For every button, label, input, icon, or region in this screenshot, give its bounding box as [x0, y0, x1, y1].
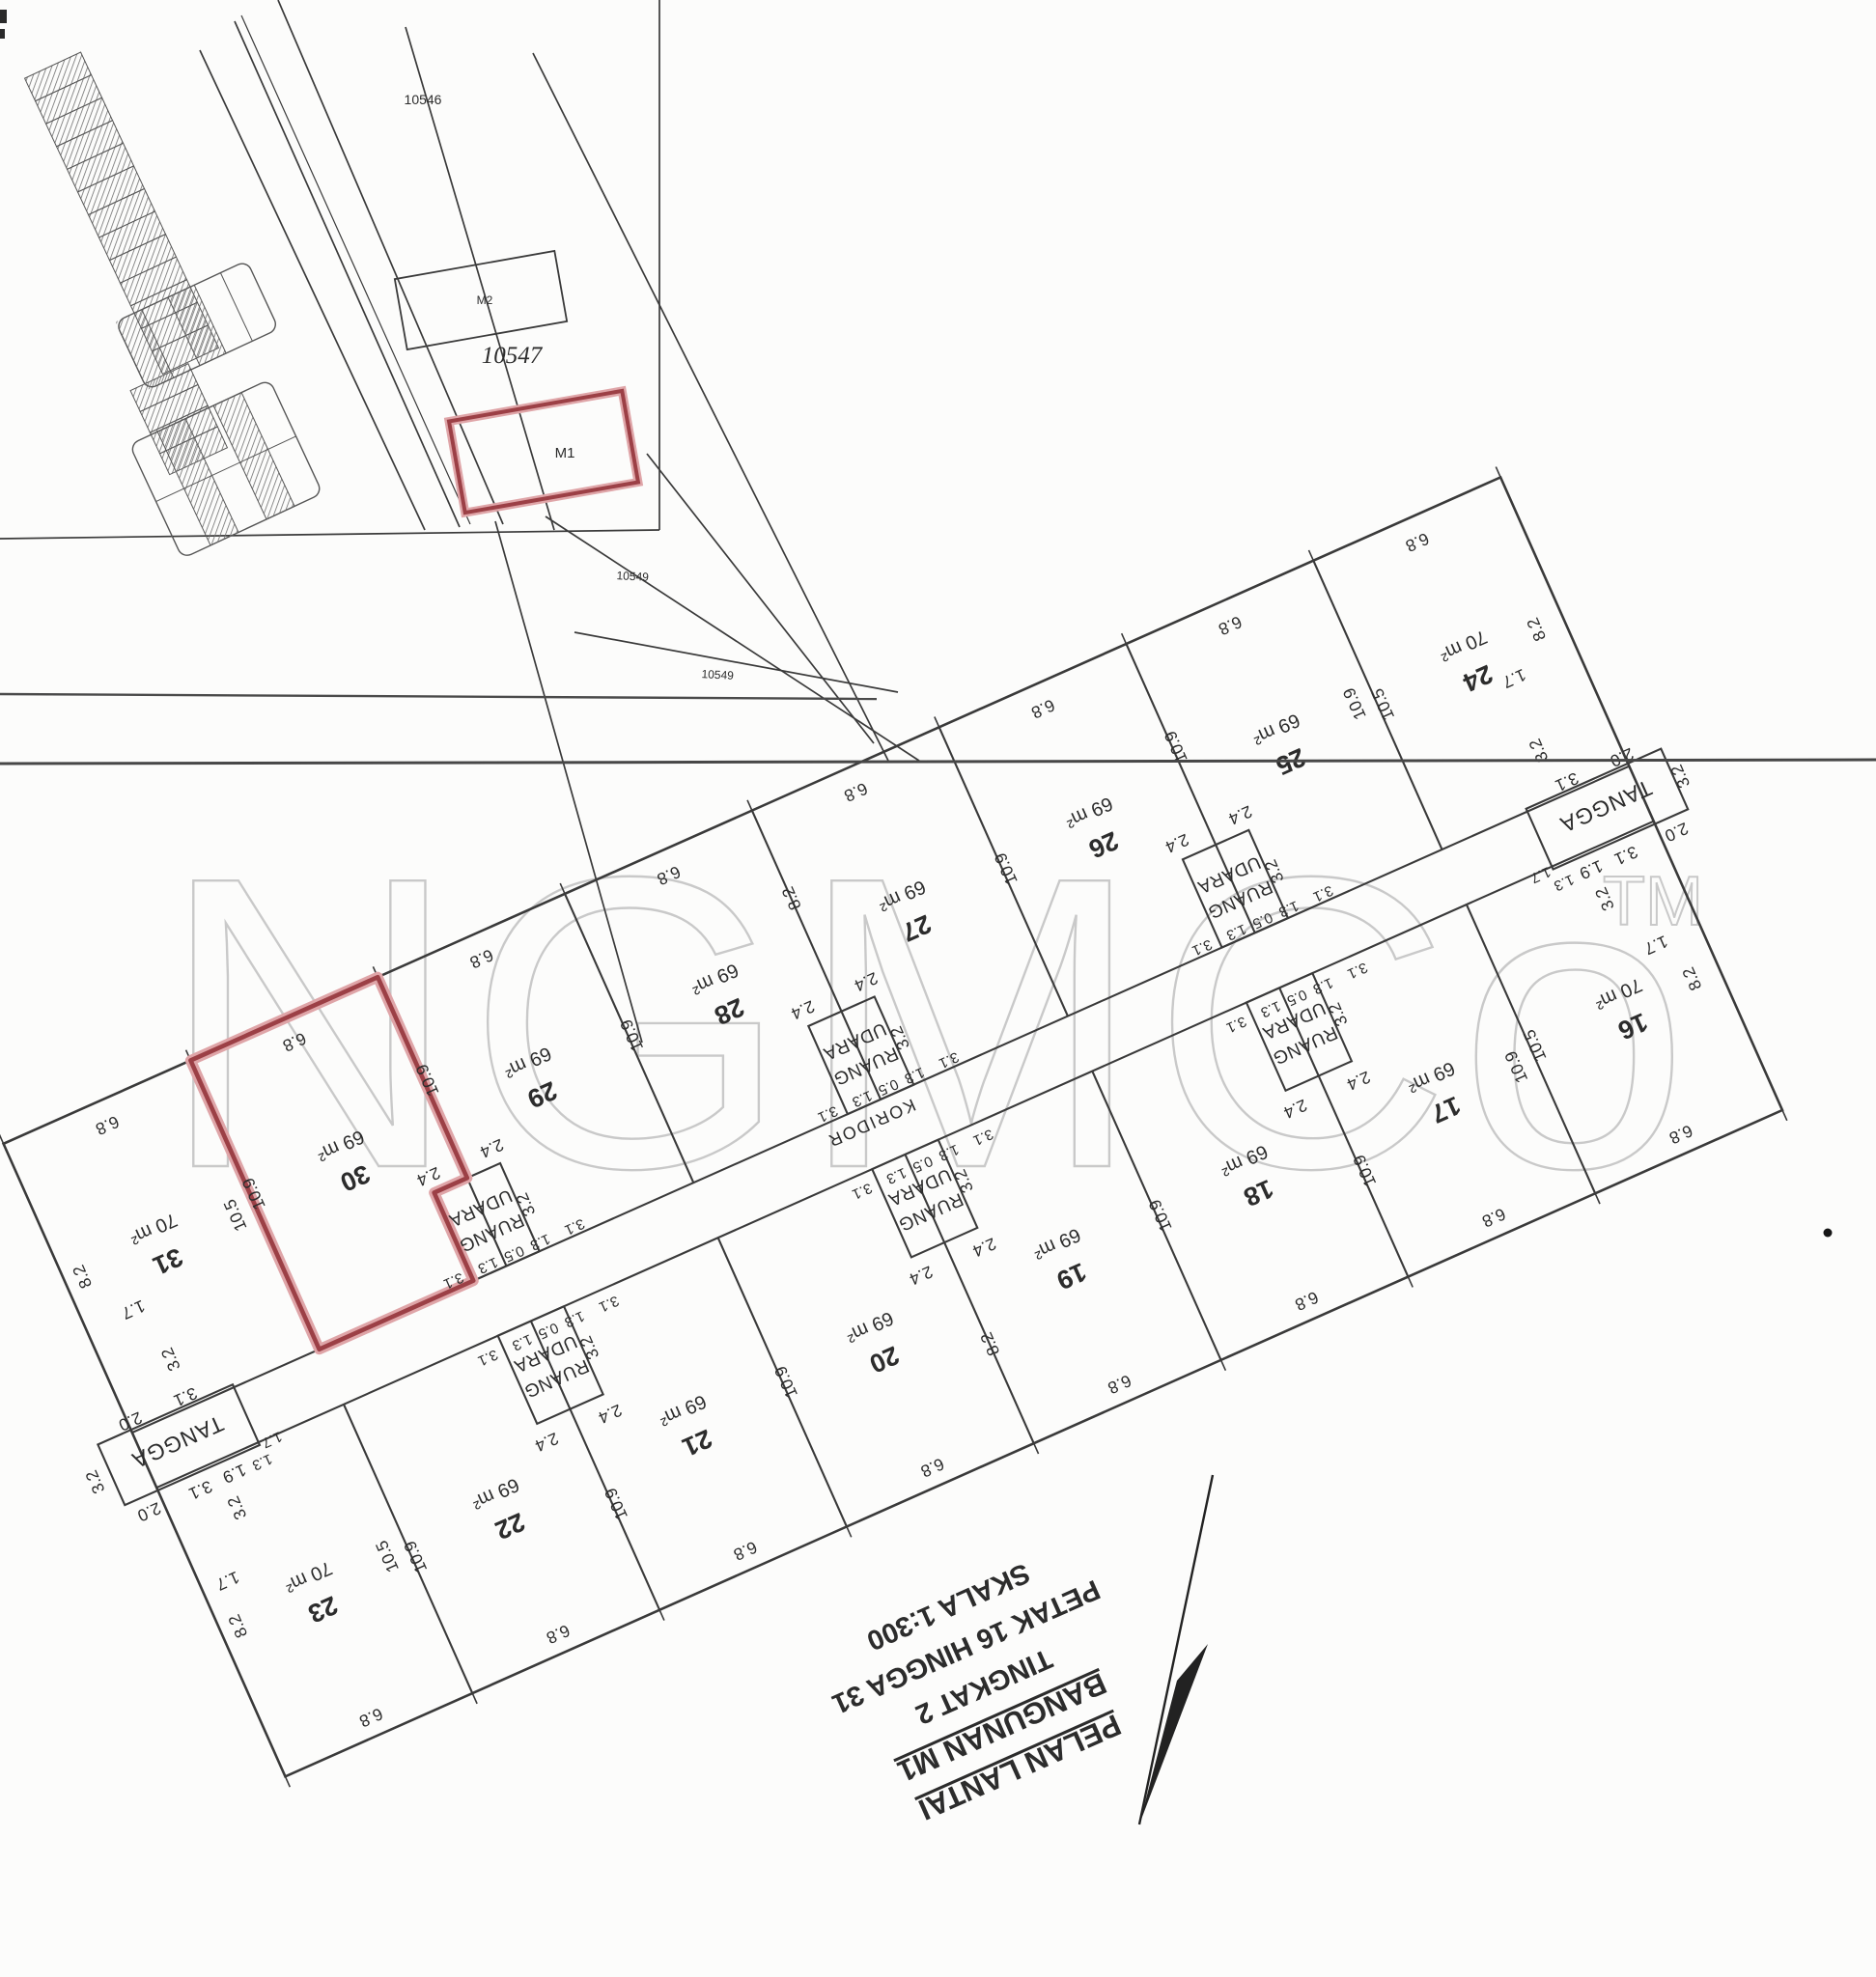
dimension-label: 6.8 [1028, 695, 1057, 722]
dimension-label: 6.8 [356, 1704, 385, 1731]
scanned-document-page: NGMCo TM 1054610547M2M11054910549 1670 m… [0, 0, 1876, 1977]
boundary-tick [1496, 467, 1500, 478]
scan-fold-line [0, 760, 1876, 764]
boundary-tick [1122, 633, 1127, 644]
unit-number: 24 [1459, 659, 1498, 698]
lot-label-10546: 10546 [405, 92, 442, 107]
dimension-label: 6.8 [1403, 529, 1432, 556]
unit-number: 21 [678, 1424, 716, 1462]
dimension-label: 6.8 [731, 1538, 760, 1565]
boundary-tick [935, 716, 939, 727]
dimension-label: 1.9 [220, 1461, 249, 1488]
dimension-label: 8.2 [976, 1329, 1003, 1358]
dimension-label: 2.4 [907, 1262, 937, 1289]
dimension-label: 1.3 [250, 1450, 275, 1473]
unit-number: 20 [865, 1340, 904, 1378]
dimension-label: 1.3 [475, 1254, 500, 1277]
unit-area: 70 m² [281, 1557, 335, 1597]
dimension-label: 10.9 [770, 1363, 801, 1401]
unit-number: 19 [1052, 1257, 1091, 1295]
dimension-label: 8.2 [224, 1611, 251, 1640]
dimension-label: 2.4 [596, 1401, 626, 1428]
party-wall [531, 1321, 659, 1609]
boundary-tick [1221, 1360, 1226, 1371]
dimension-label: 2.4 [532, 1429, 562, 1456]
dimension-label: 3.2 [223, 1493, 250, 1522]
boundary-tick [659, 1610, 664, 1621]
lot-label-10549: 10549 [701, 667, 734, 682]
unit-number: 23 [304, 1590, 343, 1629]
dimension-label: 1.7 [119, 1296, 148, 1323]
north-arrow-shaft [1139, 1475, 1213, 1824]
road-edge [278, 0, 503, 524]
inset-border [0, 530, 659, 539]
unit-area: 69 m² [1249, 709, 1303, 748]
dimension-label: 3.2 [157, 1345, 184, 1374]
boundary-tick [0, 1133, 4, 1144]
dimension-label: 10.9 [1339, 685, 1370, 723]
lot-label-10549: 10549 [616, 569, 649, 584]
scan-fold-line [0, 694, 877, 699]
scan-edge-mark [0, 10, 7, 23]
dimension-label: 1.7 [1499, 665, 1528, 692]
dimension-label: 10.9 [400, 1538, 431, 1575]
dimension-label: 3.2 [81, 1467, 108, 1496]
dimension-label: 2.0 [116, 1408, 146, 1435]
dimension-label: 10.9 [601, 1485, 631, 1522]
boundary-tick [1782, 1110, 1787, 1121]
lot-boundary [647, 454, 874, 743]
dimension-label: 8.2 [69, 1263, 96, 1292]
dimension-label: 3.2 [1666, 762, 1694, 791]
north-arrow-head [1139, 1644, 1208, 1824]
dimension-label: 6.8 [544, 1621, 573, 1648]
scan-speck [1824, 1229, 1833, 1238]
dimension-label: 1.7 [213, 1568, 242, 1595]
boundary-tick [472, 1693, 477, 1704]
lot-divider [220, 273, 252, 342]
dimension-label: 6.8 [93, 1112, 122, 1139]
dimension-label: 2.0 [134, 1498, 164, 1525]
projection-leader [546, 516, 919, 761]
dimension-label: 6.8 [1216, 612, 1245, 639]
boundary-tick [1308, 550, 1313, 561]
dimension-label: 3.1 [186, 1477, 215, 1504]
boundary-tick [1408, 1277, 1413, 1288]
dimension-label: 3.1 [475, 1346, 500, 1369]
unit-area: 70 m² [1436, 626, 1490, 665]
building-m2-label: M2 [477, 293, 493, 307]
lot-boundary [533, 53, 888, 761]
scan-edge-mark [0, 29, 5, 39]
dimension-label: 2.0 [1608, 744, 1638, 771]
north-arrow [1139, 1475, 1213, 1824]
dimension-label: 10.5 [372, 1538, 403, 1575]
dimension-label: 6.8 [918, 1454, 947, 1481]
dimension-label: 6.8 [1292, 1288, 1321, 1315]
unit-number: 22 [490, 1507, 529, 1545]
road-edge [200, 50, 425, 530]
unit-area: 69 m² [843, 1307, 897, 1347]
dimension-label: 3.1 [171, 1383, 200, 1410]
watermark-tm-mark: TM [1603, 863, 1703, 940]
boundary-tick [285, 1776, 290, 1787]
dimension-label: 6.8 [1105, 1371, 1134, 1398]
boundary-tick [1034, 1443, 1039, 1454]
unit-area: 69 m² [468, 1473, 522, 1513]
lot-label-10547: 10547 [482, 343, 544, 369]
unit-area: 69 m² [656, 1390, 710, 1430]
building-m1-label: M1 [555, 445, 575, 461]
dimension-label: 3.1 [597, 1292, 622, 1315]
dimension-label: 8.2 [1523, 615, 1550, 644]
page-svg: NGMCo TM 1054610547M2M11054910549 1670 m… [0, 0, 1876, 1977]
boundary-tick [847, 1526, 852, 1537]
